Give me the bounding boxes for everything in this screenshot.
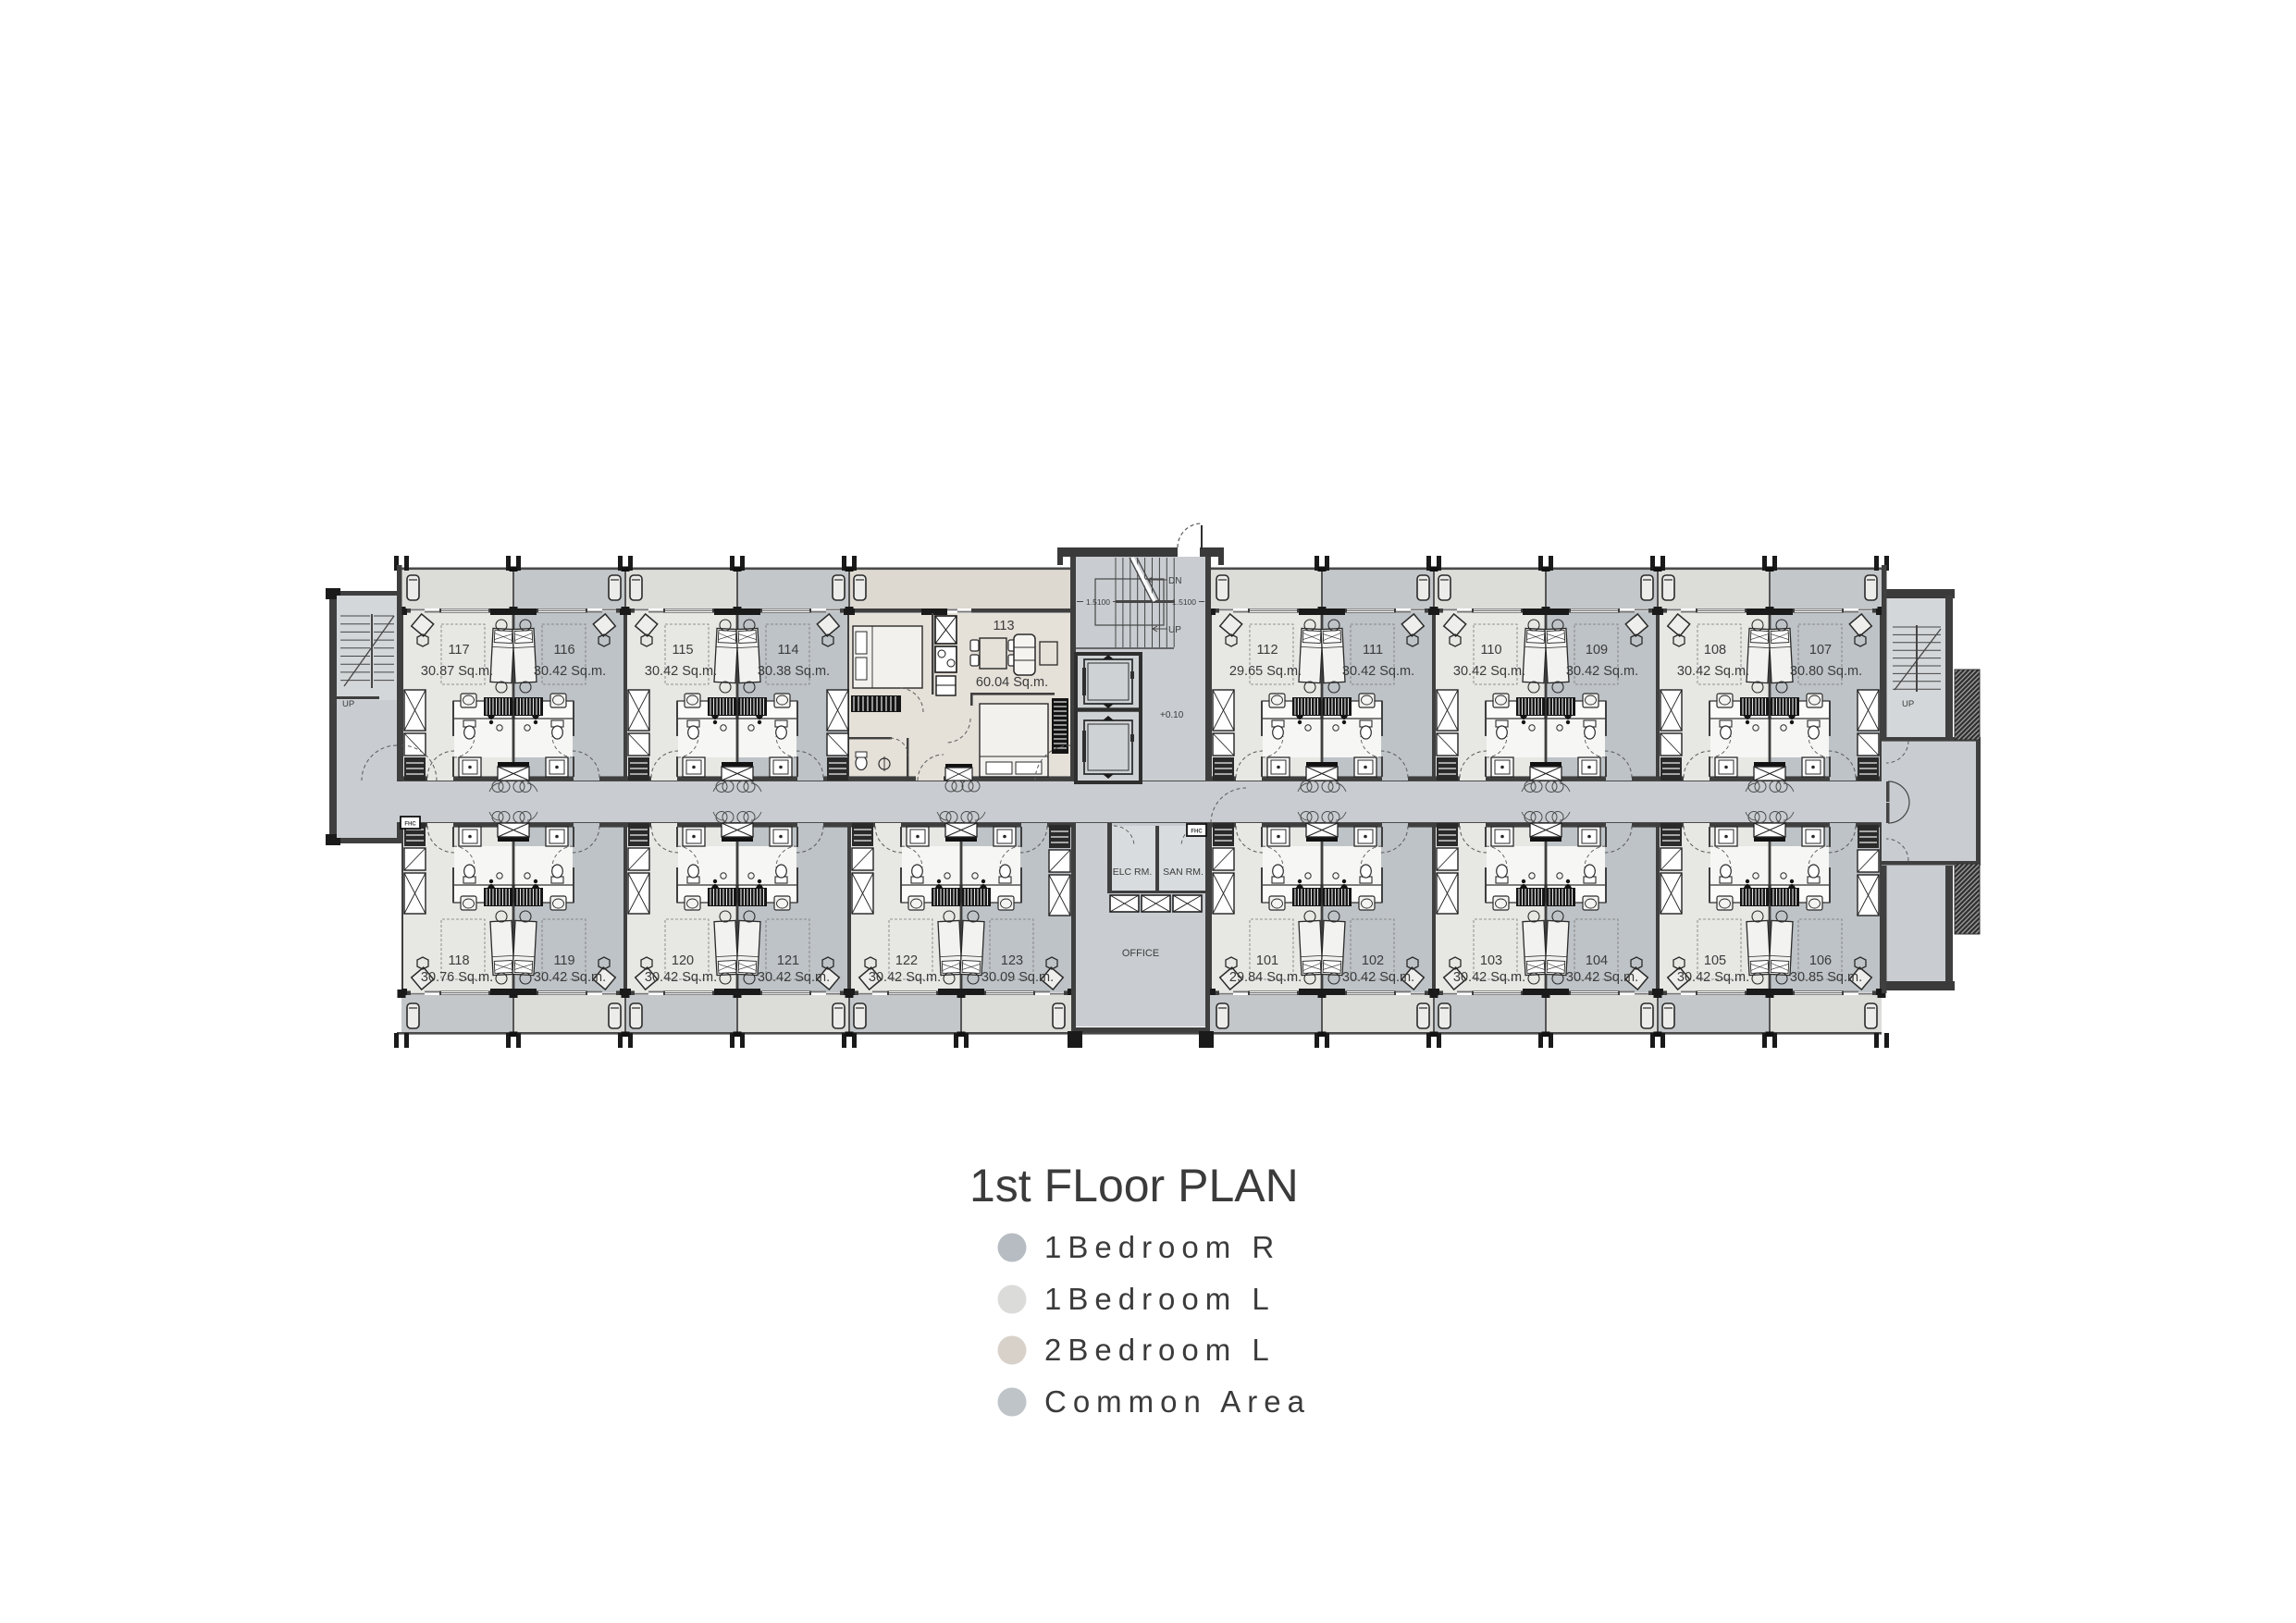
svg-text:DN: DN bbox=[1168, 576, 1181, 586]
svg-text:30.42 Sq.m.: 30.42 Sq.m. bbox=[869, 970, 941, 985]
svg-text:112: 112 bbox=[1256, 643, 1278, 658]
svg-text:115: 115 bbox=[672, 643, 693, 658]
svg-text:SAN RM.: SAN RM. bbox=[1163, 867, 1204, 878]
svg-text:60.04 Sq.m.: 60.04 Sq.m. bbox=[976, 675, 1048, 690]
svg-text:109: 109 bbox=[1586, 643, 1608, 658]
svg-text:30.42 Sq.m.: 30.42 Sq.m. bbox=[1453, 664, 1525, 679]
svg-text:UP: UP bbox=[342, 699, 354, 709]
svg-text:119: 119 bbox=[553, 953, 574, 968]
svg-text:30.42 Sq.m.: 30.42 Sq.m. bbox=[1342, 970, 1414, 985]
svg-text:FHC: FHC bbox=[404, 822, 416, 828]
svg-text:Common Area: Common Area bbox=[1044, 1384, 1311, 1419]
svg-text:111: 111 bbox=[1363, 643, 1383, 658]
svg-text:104: 104 bbox=[1586, 953, 1608, 968]
svg-text:30.42 Sq.m.: 30.42 Sq.m. bbox=[534, 664, 606, 679]
svg-text:UP: UP bbox=[1168, 625, 1181, 635]
svg-text:2Bedroom L: 2Bedroom L bbox=[1044, 1333, 1276, 1367]
svg-text:117: 117 bbox=[448, 643, 469, 658]
svg-text:30.85 Sq.m.: 30.85 Sq.m. bbox=[1790, 970, 1862, 985]
svg-text:123: 123 bbox=[1001, 953, 1023, 968]
svg-text:30.42 Sq.m.: 30.42 Sq.m. bbox=[1566, 970, 1638, 985]
svg-text:30.80 Sq.m.: 30.80 Sq.m. bbox=[1790, 664, 1862, 679]
svg-text:FHC: FHC bbox=[1191, 830, 1203, 835]
svg-text:116: 116 bbox=[553, 643, 574, 658]
svg-text:1.5100: 1.5100 bbox=[1086, 597, 1110, 607]
svg-text:114: 114 bbox=[777, 643, 798, 658]
svg-text:29.65 Sq.m.: 29.65 Sq.m. bbox=[1229, 664, 1302, 679]
svg-text:30.09 Sq.m.: 30.09 Sq.m. bbox=[981, 970, 1054, 985]
svg-text:30.38 Sq.m.: 30.38 Sq.m. bbox=[758, 664, 830, 679]
svg-text:101: 101 bbox=[1256, 953, 1278, 968]
svg-text:1.5100: 1.5100 bbox=[1172, 597, 1196, 607]
svg-text:30.42 Sq.m.: 30.42 Sq.m. bbox=[645, 664, 717, 679]
svg-text:105: 105 bbox=[1704, 953, 1726, 968]
svg-text:1Bedroom L: 1Bedroom L bbox=[1044, 1282, 1276, 1316]
svg-text:121: 121 bbox=[777, 953, 799, 968]
svg-text:30.42 Sq.m.: 30.42 Sq.m. bbox=[1453, 970, 1525, 985]
svg-text:30.76 Sq.m.: 30.76 Sq.m. bbox=[421, 970, 493, 985]
svg-text:30.42 Sq.m.: 30.42 Sq.m. bbox=[534, 970, 606, 985]
svg-text:102: 102 bbox=[1362, 953, 1384, 968]
svg-text:+0.10: +0.10 bbox=[1160, 710, 1184, 720]
svg-text:UP: UP bbox=[1902, 699, 1914, 709]
svg-text:30.87 Sq.m.: 30.87 Sq.m. bbox=[421, 664, 493, 679]
svg-text:OFFICE: OFFICE bbox=[1122, 948, 1159, 959]
svg-text:120: 120 bbox=[672, 953, 694, 968]
svg-text:122: 122 bbox=[895, 953, 918, 968]
svg-text:ELC RM.: ELC RM. bbox=[1113, 867, 1153, 878]
svg-text:30.42 Sq.m.: 30.42 Sq.m. bbox=[758, 970, 830, 985]
svg-text:1st FLoor PLAN: 1st FLoor PLAN bbox=[969, 1160, 1299, 1211]
svg-text:113: 113 bbox=[993, 619, 1014, 633]
svg-text:30.42 Sq.m.: 30.42 Sq.m. bbox=[1677, 970, 1749, 985]
svg-text:108: 108 bbox=[1704, 643, 1726, 658]
svg-text:30.42 Sq.m.: 30.42 Sq.m. bbox=[1342, 664, 1414, 679]
svg-text:29.84 Sq.m.: 29.84 Sq.m. bbox=[1229, 970, 1302, 985]
svg-text:106: 106 bbox=[1809, 953, 1832, 968]
svg-text:110: 110 bbox=[1480, 643, 1501, 658]
svg-text:118: 118 bbox=[448, 953, 469, 968]
svg-text:107: 107 bbox=[1809, 643, 1832, 658]
svg-text:1Bedroom R: 1Bedroom R bbox=[1044, 1230, 1280, 1264]
svg-text:30.42 Sq.m.: 30.42 Sq.m. bbox=[1677, 664, 1749, 679]
svg-text:30.42 Sq.m.: 30.42 Sq.m. bbox=[645, 970, 717, 985]
svg-text:103: 103 bbox=[1480, 953, 1502, 968]
svg-text:30.42 Sq.m.: 30.42 Sq.m. bbox=[1566, 664, 1638, 679]
